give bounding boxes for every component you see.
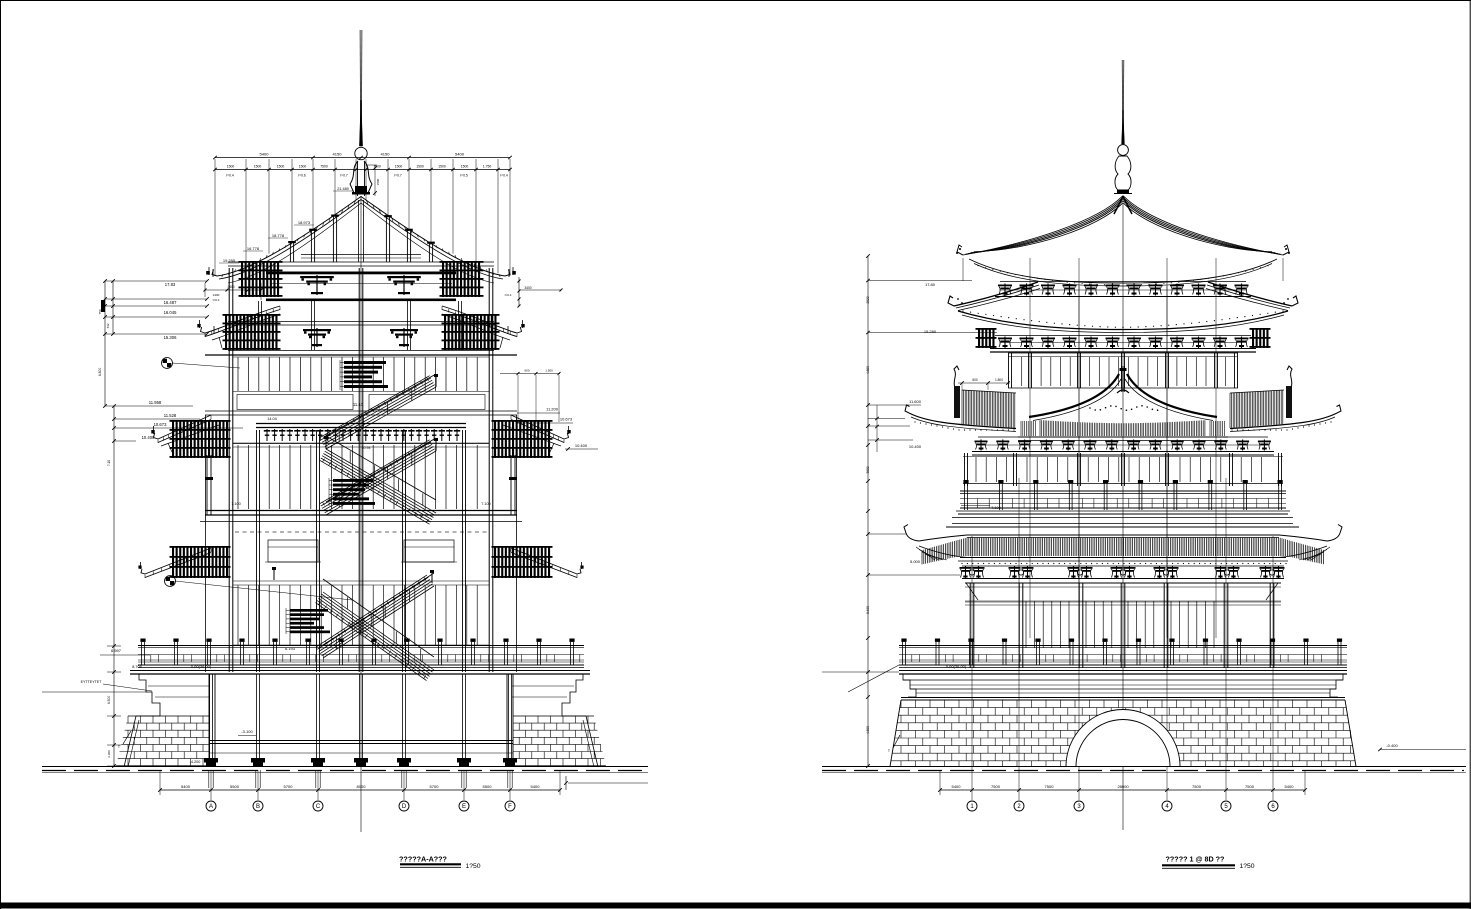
svg-text:F: F xyxy=(508,804,512,810)
svg-text:-3.100: -3.100 xyxy=(241,729,253,734)
svg-text:18.778: 18.778 xyxy=(272,233,285,238)
svg-text:1500: 1500 xyxy=(461,164,469,168)
svg-text:11.600: 11.600 xyxy=(909,399,922,404)
svg-text:I=0.7: I=0.7 xyxy=(340,174,348,178)
svg-text:-0.400: -0.400 xyxy=(1386,743,1398,748)
svg-text:7500: 7500 xyxy=(320,164,328,168)
svg-text:600: 600 xyxy=(972,378,978,382)
svg-text:442: 442 xyxy=(106,323,110,328)
svg-text:1.500: 1.500 xyxy=(545,369,553,373)
svg-text:10.400: 10.400 xyxy=(142,435,155,440)
svg-text:16.487: 16.487 xyxy=(164,300,177,305)
svg-text:4.500: 4.500 xyxy=(107,696,111,705)
svg-text:6.597: 6.597 xyxy=(111,648,122,653)
svg-text:11.528: 11.528 xyxy=(164,413,177,418)
svg-text:6.193: 6.193 xyxy=(285,646,296,651)
svg-text:I=0.4: I=0.4 xyxy=(500,174,508,178)
svg-text:1.750: 1.750 xyxy=(483,164,492,168)
svg-text:21.480: 21.480 xyxy=(337,187,349,191)
svg-text:B: B xyxy=(256,804,260,810)
svg-text:7.100: 7.100 xyxy=(231,502,241,506)
svg-text:5: 5 xyxy=(1224,804,1228,810)
svg-text:1500: 1500 xyxy=(254,164,262,168)
svg-text:I=0.4: I=0.4 xyxy=(505,293,512,297)
svg-text:C: C xyxy=(316,804,321,810)
svg-text:-4.200: -4.200 xyxy=(190,760,201,764)
svg-text:1?50: 1?50 xyxy=(465,863,480,870)
svg-text:11.958: 11.958 xyxy=(149,400,162,405)
svg-text:3400: 3400 xyxy=(524,286,531,290)
svg-text:10.673: 10.673 xyxy=(560,417,573,422)
svg-text:8.708: 8.708 xyxy=(132,665,142,669)
svg-text:I=0.4: I=0.4 xyxy=(213,298,220,302)
svg-text:8.400: 8.400 xyxy=(866,606,870,614)
svg-text:11.200: 11.200 xyxy=(546,407,559,412)
svg-text:7500: 7500 xyxy=(1192,784,1202,789)
svg-text:1500: 1500 xyxy=(395,164,403,168)
svg-text:11.10: 11.10 xyxy=(353,402,364,407)
svg-text:I=0.7: I=0.7 xyxy=(394,174,402,178)
svg-text:4.500: 4.500 xyxy=(866,726,870,734)
svg-text:1500: 1500 xyxy=(227,164,235,168)
svg-text:7500: 7500 xyxy=(1045,784,1055,789)
svg-text:5400: 5400 xyxy=(531,784,541,789)
svg-text:5400: 5400 xyxy=(181,784,191,789)
svg-text:????? 1 @ 8D ??: ????? 1 @ 8D ?? xyxy=(1166,855,1225,864)
svg-text:4.800: 4.800 xyxy=(98,368,102,377)
svg-text:1500: 1500 xyxy=(416,164,424,168)
svg-text:E: E xyxy=(462,804,466,810)
svg-text:3400: 3400 xyxy=(227,285,234,289)
svg-text:5400: 5400 xyxy=(1285,784,1295,789)
svg-text:0.00(36.00): 0.00(36.00) xyxy=(946,664,967,669)
svg-text:7.10: 7.10 xyxy=(107,460,111,466)
svg-text:1500: 1500 xyxy=(376,178,380,185)
svg-text:3: 3 xyxy=(1077,804,1081,810)
svg-text:6: 6 xyxy=(1271,804,1275,810)
svg-text:I=0.5: I=0.5 xyxy=(460,174,468,178)
svg-text:4.800: 4.800 xyxy=(866,366,870,374)
svg-text:7.100: 7.100 xyxy=(991,506,1001,510)
svg-text:5.000: 5.000 xyxy=(910,559,921,564)
svg-text:1500: 1500 xyxy=(299,164,307,168)
svg-text:1500: 1500 xyxy=(277,164,285,168)
svg-text:1?50: 1?50 xyxy=(1239,863,1254,870)
svg-text:1: 1 xyxy=(970,804,974,810)
svg-text:28000: 28000 xyxy=(1117,784,1129,789)
svg-text:I=0.6: I=0.6 xyxy=(298,174,306,178)
svg-text:4150: 4150 xyxy=(333,152,343,157)
svg-text:8000: 8000 xyxy=(357,784,367,789)
svg-text:15.306: 15.306 xyxy=(164,335,177,340)
svg-text:5500: 5500 xyxy=(230,784,240,789)
svg-text:5700: 5700 xyxy=(430,784,440,789)
svg-text:16.045: 16.045 xyxy=(164,310,177,315)
svg-text:7.100: 7.100 xyxy=(481,502,491,506)
svg-text:10.400: 10.400 xyxy=(909,444,922,449)
svg-text:10.400: 10.400 xyxy=(575,443,588,448)
svg-text:1500: 1500 xyxy=(438,164,446,168)
svg-text:15.280: 15.280 xyxy=(924,329,937,334)
svg-text:1.800: 1.800 xyxy=(995,378,1003,382)
svg-text:I=0.4: I=0.4 xyxy=(226,174,234,178)
svg-text:5400: 5400 xyxy=(455,152,465,157)
svg-text:18.973: 18.973 xyxy=(298,220,311,225)
svg-text:7500: 7500 xyxy=(373,164,381,168)
svg-text:10.673: 10.673 xyxy=(154,422,167,427)
svg-text:17.83: 17.83 xyxy=(165,282,176,287)
svg-text:5400: 5400 xyxy=(260,152,270,157)
svg-text:4: 4 xyxy=(1165,804,1169,810)
svg-text:750: 750 xyxy=(98,309,102,314)
svg-text:1400: 1400 xyxy=(213,293,220,297)
svg-text:4150: 4150 xyxy=(381,152,391,157)
svg-text:5700: 5700 xyxy=(284,784,294,789)
svg-text:16.778: 16.778 xyxy=(247,246,260,251)
svg-text:2.300: 2.300 xyxy=(107,750,111,758)
svg-text:T: T xyxy=(118,745,121,749)
svg-text:2520: 2520 xyxy=(866,296,870,303)
svg-text:5500: 5500 xyxy=(483,784,493,789)
svg-text:T: T xyxy=(888,749,891,753)
svg-text:2: 2 xyxy=(1017,804,1021,810)
svg-text:?????A-A???: ?????A-A??? xyxy=(399,855,447,864)
svg-text:5400: 5400 xyxy=(952,784,962,789)
svg-text:7500: 7500 xyxy=(991,784,1001,789)
svg-text:A: A xyxy=(209,804,213,810)
svg-text:17.80: 17.80 xyxy=(925,282,936,287)
svg-text:3600: 3600 xyxy=(866,466,870,473)
svg-text:D: D xyxy=(402,804,407,810)
svg-text:7500: 7500 xyxy=(1245,784,1255,789)
svg-text:14.04: 14.04 xyxy=(267,417,277,421)
svg-text:0.00(36.00): 0.00(36.00) xyxy=(191,664,212,669)
svg-text:EYTTEYTET: EYTTEYTET xyxy=(81,680,103,684)
svg-text:600: 600 xyxy=(524,369,529,373)
